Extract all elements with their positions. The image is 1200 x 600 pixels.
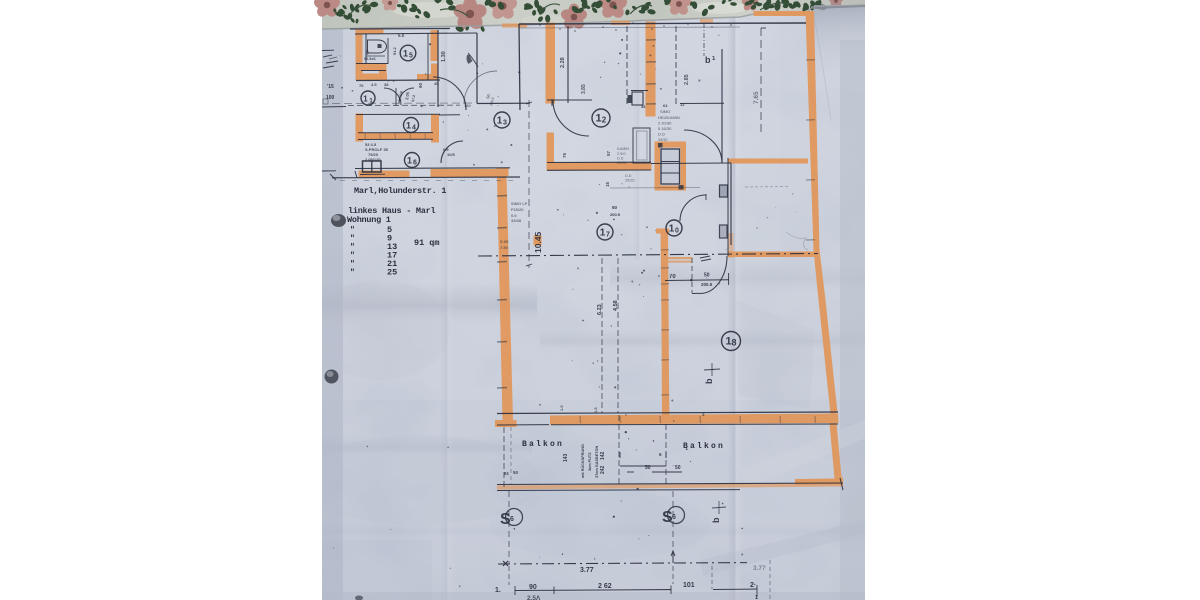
svg-text:2·: 2· (750, 582, 756, 589)
svg-text:6: 6 (672, 514, 676, 521)
svg-text:S.05: S.05 (500, 239, 509, 244)
svg-text:8: 8 (731, 338, 736, 348)
svg-text:2.5/0: 2.5/0 (617, 152, 625, 156)
svg-text:0: 0 (675, 228, 679, 235)
svg-text:Balkon: Balkon (683, 442, 725, 451)
svg-text:50: 50 (513, 470, 519, 475)
svg-text:3.77: 3.77 (580, 567, 594, 574)
svg-text:50: 50 (675, 465, 681, 471)
svg-text:D.D: D.D (658, 132, 665, 137)
svg-text:50: 50 (612, 205, 618, 210)
svg-text:6.23: 6.23 (597, 304, 603, 315)
svg-text:25/25: 25/25 (625, 179, 635, 183)
svg-text:3.77: 3.77 (753, 565, 766, 572)
svg-text:4.58: 4.58 (613, 300, 619, 311)
svg-text:D.D: D.D (625, 174, 632, 178)
svg-text:91: 91 (504, 471, 510, 476)
svg-text:1.5: 1.5 (559, 405, 564, 411)
svg-text:60: 60 (418, 82, 423, 88)
svg-text:70: 70 (669, 274, 676, 280)
svg-text:Balkon: Balkon (522, 440, 564, 449)
svg-text:1: 1 (406, 121, 411, 131)
svg-text:2 20/30: 2 20/30 (658, 121, 672, 126)
svg-text:'15: '15 (327, 84, 334, 90)
svg-text:25: 25 (387, 268, 397, 278)
svg-text:Marl,Holunderstr. 1: Marl,Holunderstr. 1 (354, 186, 446, 196)
svg-text:6: 6 (413, 160, 417, 167)
svg-text:57: 57 (606, 150, 611, 156)
svg-text:b: b (705, 55, 711, 65)
svg-text:1.: 1. (495, 587, 501, 594)
svg-text:200.5: 200.5 (610, 212, 621, 217)
svg-text:3.85: 3.85 (581, 84, 587, 94)
svg-text:7: 7 (606, 232, 610, 239)
svg-text:SIMO LF: SIMO LF (511, 201, 528, 206)
svg-text:5.0: 5.0 (398, 33, 405, 38)
svg-text:64: 64 (663, 103, 668, 108)
svg-text:6: 6 (510, 516, 514, 523)
svg-text:1: 1 (600, 228, 606, 239)
svg-text:100: 100 (326, 95, 335, 101)
svg-text:KAMIN: KAMIN (617, 147, 629, 151)
svg-text:143: 143 (563, 453, 569, 462)
svg-text:5 16/30: 5 16/30 (658, 126, 672, 131)
svg-text:2.85: 2.85 (684, 74, 690, 85)
svg-text:F15/20: F15/20 (511, 207, 524, 212)
svg-text:91 qm: 91 qm (414, 238, 440, 248)
svg-text:1: 1 (595, 113, 601, 125)
svg-text:Wohnung 1: Wohnung 1 (347, 215, 391, 225)
svg-text:50: 50 (645, 465, 651, 471)
svg-text:101: 101 (683, 582, 695, 589)
svg-text:38: 38 (384, 82, 389, 87)
svg-text:4.5: 4.5 (371, 82, 377, 87)
svg-text:1: 1 (407, 156, 412, 166)
svg-text:76: 76 (359, 83, 364, 88)
svg-text:3cm PUTZ: 3cm PUTZ (588, 452, 592, 471)
svg-text:1: 1 (497, 116, 503, 127)
svg-text:1: 1 (755, 595, 758, 600)
svg-text:2.28: 2.28 (560, 57, 566, 68)
svg-text:1: 1 (403, 49, 408, 59)
svg-text:142: 142 (600, 451, 606, 460)
svg-text:15: 15 (605, 181, 610, 187)
svg-text:2.5Λ: 2.5Λ (527, 595, 541, 600)
svg-text:1.30: 1.30 (441, 51, 447, 62)
svg-text:": " (350, 269, 355, 278)
svg-text:HEIZKAMIN: HEIZKAMIN (658, 115, 680, 120)
svg-text:2.05/120: 2.05/120 (365, 157, 381, 162)
svg-text:10.45: 10.45 (533, 231, 543, 253)
svg-text:90: 90 (529, 584, 537, 591)
svg-text:2 62: 2 62 (598, 583, 612, 590)
svg-text:12: 12 (680, 102, 685, 107)
svg-text:200.5: 200.5 (701, 282, 713, 287)
svg-text:D.D: D.D (617, 157, 624, 161)
svg-text:180: 180 (464, 103, 471, 108)
svg-text:242: 242 (600, 465, 606, 474)
svg-text:4: 4 (412, 125, 416, 132)
svg-text:1: 1 (669, 224, 675, 235)
svg-text:75: 75 (562, 152, 567, 158)
svg-text:33/38: 33/38 (511, 218, 522, 223)
svg-text:10/5: 10/5 (447, 152, 456, 157)
svg-text:1: 1 (363, 95, 368, 104)
svg-text:91.2: 91.2 (392, 46, 397, 55)
svg-text:b: b (704, 378, 714, 384)
svg-text:34/32: 34/32 (658, 138, 668, 142)
svg-text:5: 5 (409, 53, 413, 60)
svg-text:2: 2 (602, 116, 607, 125)
svg-text:mit RÜCKSPRUNG: mit RÜCKSPRUNG (580, 444, 585, 478)
svg-text:37cm GASBETON: 37cm GASBETON (595, 446, 599, 478)
svg-text:92.5x6: 92.5x6 (364, 57, 376, 61)
svg-text:7.50: 7.50 (500, 245, 509, 250)
svg-text:22/02: 22/02 (617, 161, 627, 165)
svg-text:SIMO: SIMO (660, 109, 670, 114)
svg-text:1.5: 1.5 (593, 407, 598, 413)
svg-text:3: 3 (503, 120, 507, 127)
svg-text:38: 38 (641, 104, 646, 109)
svg-text:45: 45 (434, 81, 439, 86)
svg-text:7.65: 7.65 (753, 91, 760, 104)
svg-text:b: b (711, 517, 721, 523)
